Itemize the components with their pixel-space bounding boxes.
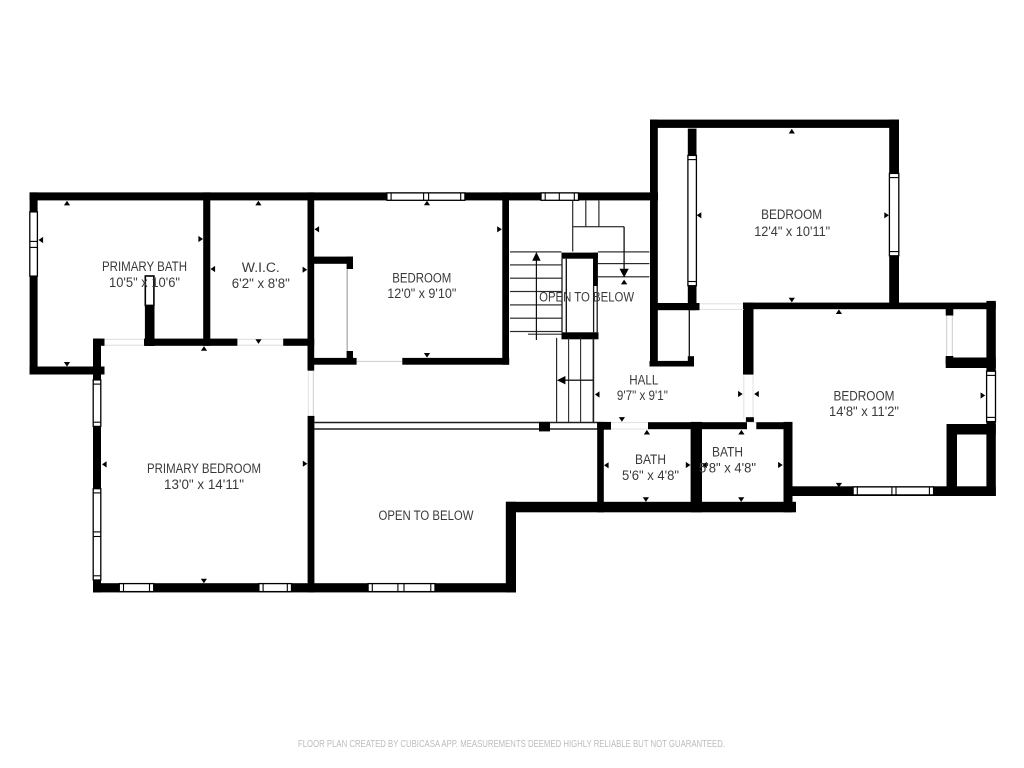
svg-text:9'7" x 9'1": 9'7" x 9'1"	[617, 388, 668, 403]
svg-text:OPEN TO BELOW: OPEN TO BELOW	[539, 290, 634, 305]
svg-text:10'5" x 10'6": 10'5" x 10'6"	[109, 275, 180, 290]
svg-text:5'8" x 4'8": 5'8" x 4'8"	[699, 461, 756, 476]
svg-text:6'2" x 8'8": 6'2" x 8'8"	[232, 276, 290, 291]
svg-text:HALL: HALL	[629, 373, 658, 388]
svg-text:W.I.C.: W.I.C.	[242, 260, 280, 275]
svg-text:BATH: BATH	[712, 445, 743, 460]
svg-text:PRIMARY BATH: PRIMARY BATH	[102, 259, 187, 274]
svg-text:BEDROOM: BEDROOM	[761, 207, 822, 222]
svg-text:BATH: BATH	[635, 452, 666, 467]
svg-text:OPEN TO BELOW: OPEN TO BELOW	[379, 508, 474, 523]
svg-text:BEDROOM: BEDROOM	[834, 389, 895, 404]
svg-text:12'4" x 10'11": 12'4" x 10'11"	[754, 224, 830, 239]
svg-text:13'0" x 14'11": 13'0" x 14'11"	[164, 477, 244, 492]
svg-text:12'0" x 9'10": 12'0" x 9'10"	[387, 286, 456, 301]
svg-text:5'6" x 4'8": 5'6" x 4'8"	[622, 468, 679, 483]
svg-text:14'8" x 11'2": 14'8" x 11'2"	[829, 404, 899, 419]
svg-text:BEDROOM: BEDROOM	[392, 270, 451, 285]
svg-text:FLOOR PLAN CREATED BY CUBICASA: FLOOR PLAN CREATED BY CUBICASA APP. MEAS…	[298, 739, 725, 750]
svg-text:PRIMARY BEDROOM: PRIMARY BEDROOM	[147, 461, 261, 476]
